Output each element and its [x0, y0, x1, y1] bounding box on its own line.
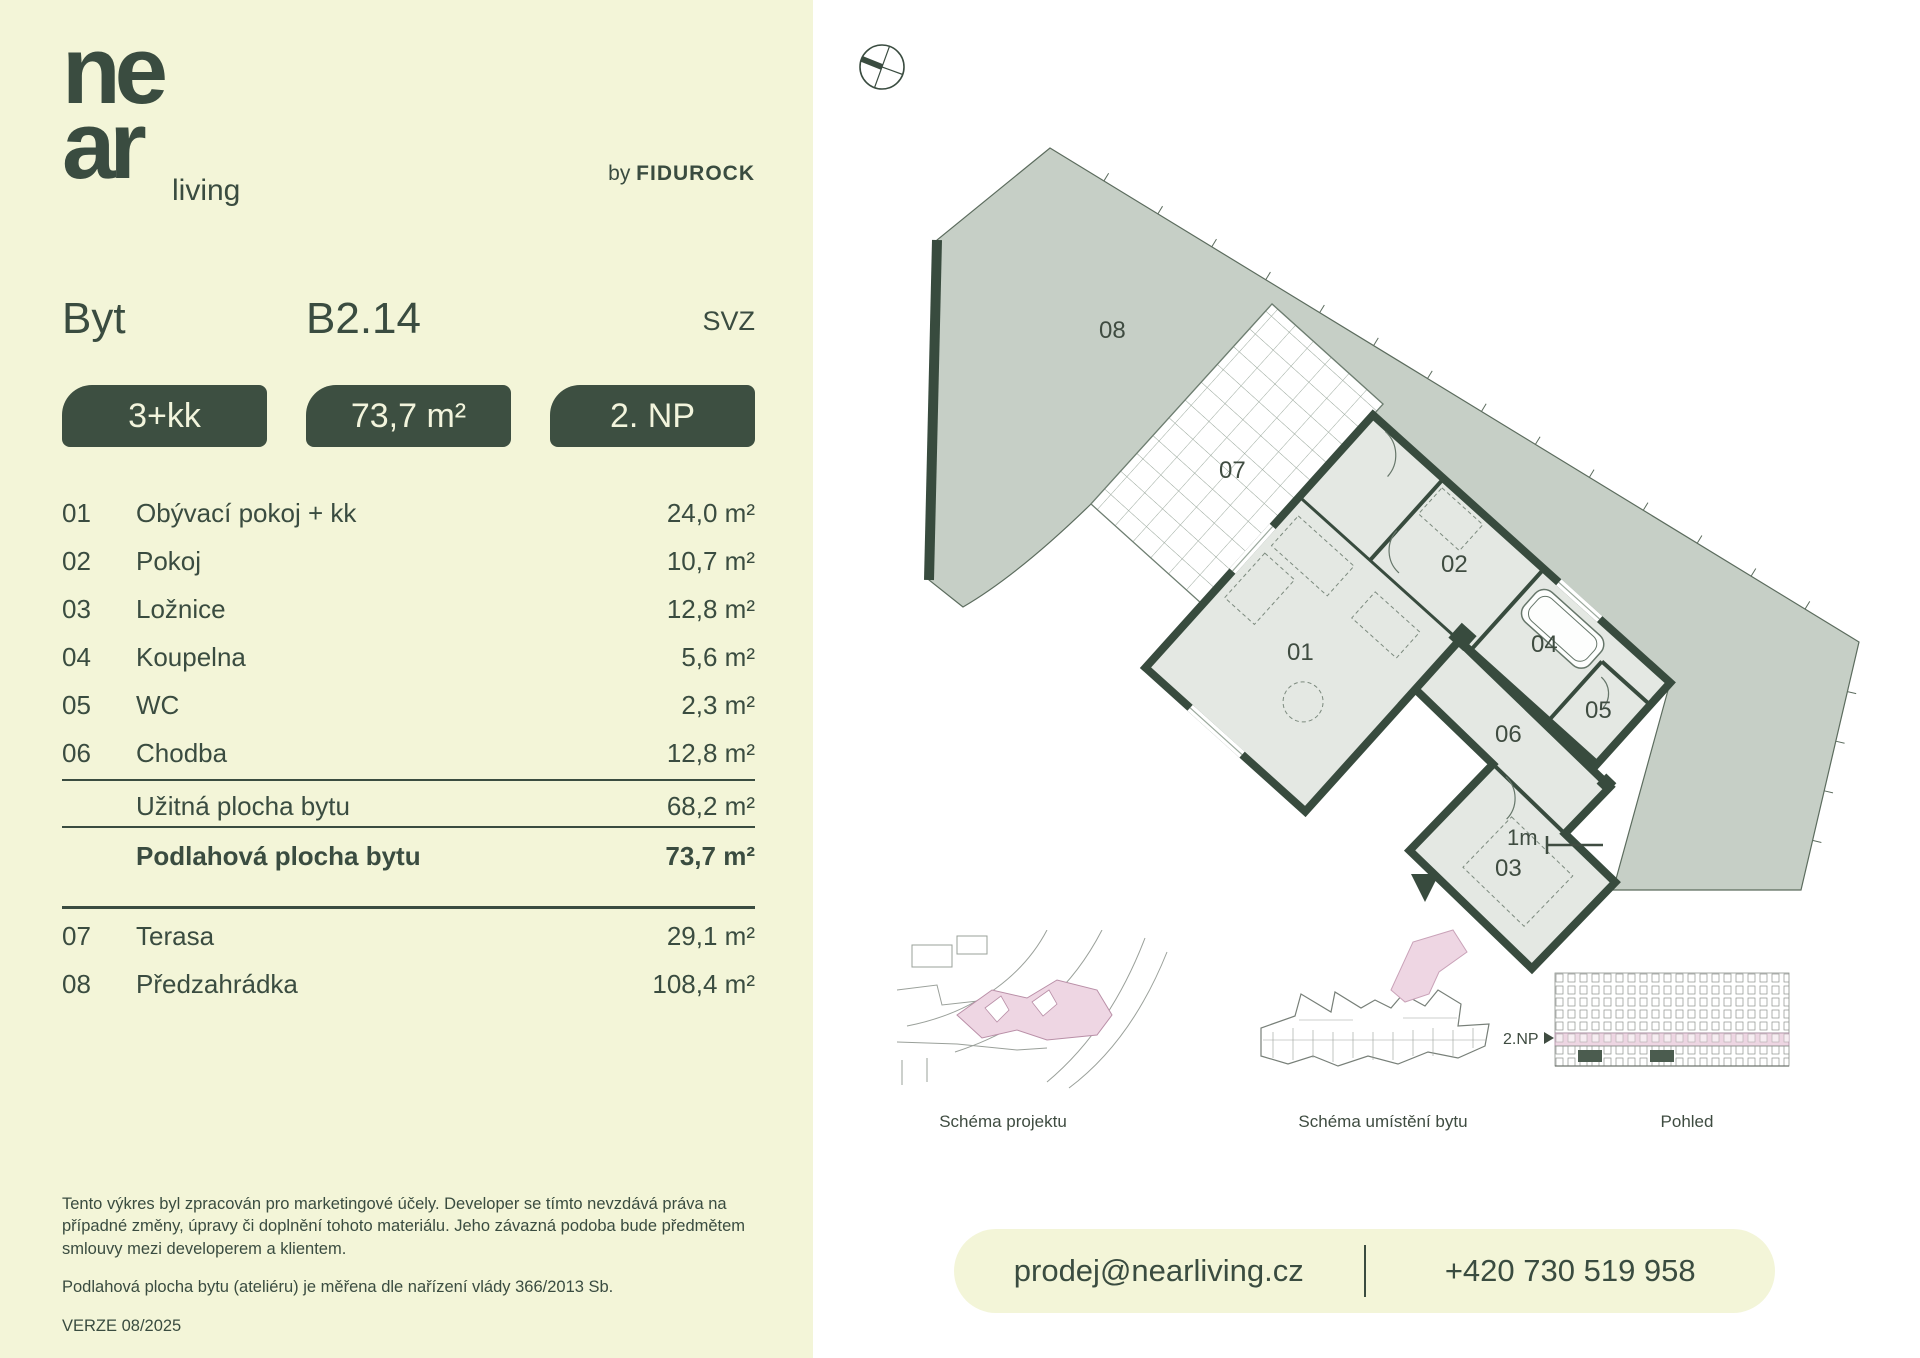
version-label: VERZE 08/2025 — [62, 1315, 762, 1337]
contact-email-link[interactable]: prodej@nearliving.cz — [954, 1253, 1364, 1289]
room-name: Obývací pokoj + kk — [136, 498, 356, 529]
divider — [62, 906, 755, 909]
compass-icon — [860, 45, 904, 89]
room-area: 12,8 m² — [667, 738, 755, 769]
plan-panel: 08 07 01 02 04 05 06 03 1m — [813, 0, 1920, 1358]
unit-orientation: SVZ — [702, 306, 755, 337]
room-name: Terasa — [136, 921, 214, 952]
badges-row: 3+kk 73,7 m² 2. NP — [62, 385, 755, 447]
room-area: 12,8 m² — [667, 594, 755, 625]
disclaimer-text: Tento výkres byl zpracován pro marketing… — [62, 1193, 762, 1260]
label-03: 03 — [1495, 855, 1522, 882]
room-number: 03 — [62, 594, 91, 625]
badge-floor: 2. NP — [550, 385, 755, 447]
table-row: 02Pokoj10,7 m² — [62, 546, 755, 576]
contact-bar: prodej@nearliving.cz +420 730 519 958 — [954, 1229, 1775, 1313]
usable-area-value: 68,2 m² — [667, 791, 755, 822]
building-outline — [1261, 990, 1489, 1066]
room-name: Chodba — [136, 738, 227, 769]
room-number: 01 — [62, 498, 91, 529]
project-scheme-label: Schéma projektu — [873, 1112, 1133, 1132]
elevation-label: Pohled — [1570, 1112, 1804, 1132]
label-05: 05 — [1585, 697, 1612, 724]
divider — [62, 826, 755, 828]
badge-area: 73,7 m² — [306, 385, 511, 447]
unit-location-map — [1253, 928, 1503, 1098]
room-name: Koupelna — [136, 642, 246, 673]
room-area: 108,4 m² — [652, 969, 755, 1000]
label-08: 08 — [1099, 317, 1126, 344]
label-07: 07 — [1219, 457, 1246, 484]
room-number: 06 — [62, 738, 91, 769]
room-name: Předzahrádka — [136, 969, 298, 1000]
room-area: 10,7 m² — [667, 546, 755, 577]
room-area: 24,0 m² — [667, 498, 755, 529]
upper-floors — [1555, 973, 1789, 1033]
room-number: 04 — [62, 642, 91, 673]
floor-plan: 08 07 01 02 04 05 06 03 1m — [813, 0, 1920, 975]
table-row: 03Ložnice12,8 m² — [62, 594, 755, 624]
room-number: 05 — [62, 690, 91, 721]
room-name: WC — [136, 690, 179, 721]
floor-marker-label: 2.NP — [1503, 1031, 1539, 1048]
highlighted-floor-windows — [1555, 1033, 1789, 1046]
ground-door — [1578, 1050, 1602, 1062]
room-area: 2,3 m² — [681, 690, 755, 721]
divider — [62, 779, 755, 781]
room-number: 08 — [62, 969, 91, 1000]
contact-phone-link[interactable]: +420 730 519 958 — [1366, 1253, 1776, 1289]
floor-area-label: Podlahová plocha bytu — [136, 841, 421, 872]
room-name: Ložnice — [136, 594, 226, 625]
unit-header: Byt B2.14 SVZ — [62, 294, 755, 342]
label-04: 04 — [1531, 631, 1558, 658]
table-row: 05WC2,3 m² — [62, 690, 755, 720]
floor-area-value: 73,7 m² — [665, 841, 755, 872]
badge-layout: 3+kk — [62, 385, 267, 447]
by-prefix: by — [608, 162, 636, 185]
room-number: 07 — [62, 921, 91, 952]
floor-marker-2np: 2.NP — [1503, 1031, 1554, 1049]
fidurock-wordmark: FIDUROCK — [636, 162, 755, 185]
room-number: 02 — [62, 546, 91, 577]
entrance-arrow — [1411, 874, 1439, 902]
table-row: 06Chodba12,8 m² — [62, 738, 755, 768]
label-02: 02 — [1441, 551, 1468, 578]
elevation-view — [1554, 972, 1790, 1068]
table-row: 04Koupelna5,6 m² — [62, 642, 755, 672]
arrow-right-icon — [1544, 1032, 1554, 1044]
room-area: 29,1 m² — [667, 921, 755, 952]
table-row: 01Obývací pokoj + kk24,0 m² — [62, 498, 755, 528]
usable-area-label: Užitná plocha bytu — [136, 791, 350, 822]
unit-id: B2.14 — [306, 294, 421, 344]
room-area: 5,6 m² — [681, 642, 755, 673]
scale-label: 1m — [1507, 825, 1538, 850]
unit-type-label: Byt — [62, 294, 126, 344]
project-scheme-map — [897, 930, 1169, 1090]
label-06: 06 — [1495, 721, 1522, 748]
highlighted-unit-wing — [1391, 930, 1467, 1002]
sidebar: ne ar living by FIDUROCK Byt B2.14 SVZ 3… — [0, 0, 813, 1358]
ground-door — [1650, 1050, 1674, 1062]
by-fidurock: by FIDUROCK — [62, 162, 755, 186]
apartment-datasheet: ne ar living by FIDUROCK Byt B2.14 SVZ 3… — [0, 0, 1920, 1358]
unit-scheme-label: Schéma umístění bytu — [1253, 1112, 1513, 1132]
disclaimer: Tento výkres byl zpracován pro marketing… — [62, 1193, 762, 1353]
room-name: Pokoj — [136, 546, 201, 577]
highlighted-building — [957, 980, 1112, 1040]
measurement-note: Podlahová plocha bytu (ateliéru) je měře… — [62, 1276, 762, 1298]
label-01: 01 — [1287, 639, 1314, 666]
